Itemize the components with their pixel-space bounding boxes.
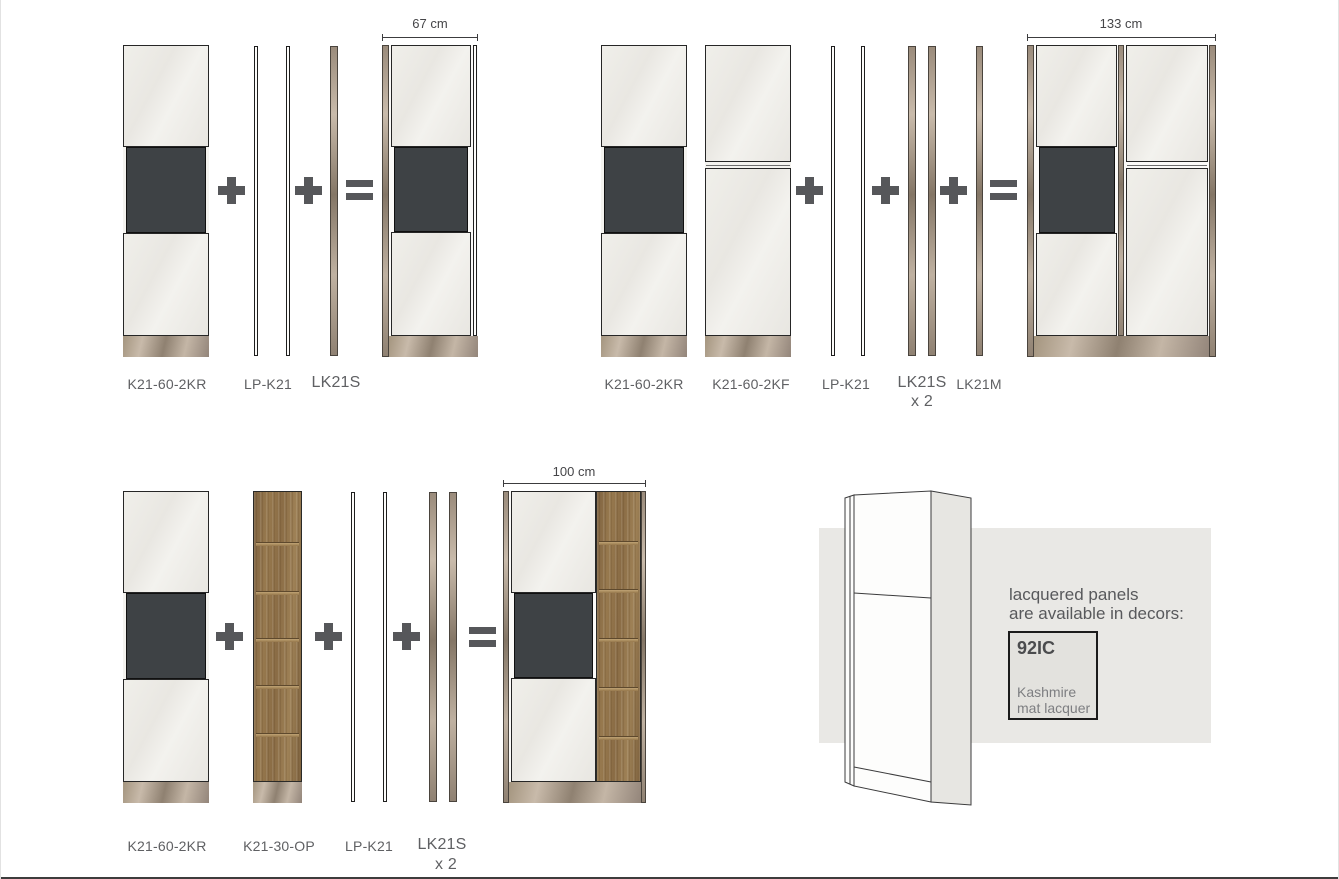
- bookcase-shelf: [256, 733, 299, 737]
- part-label: LK21S: [897, 374, 946, 392]
- cabinet-bottom-door: [123, 679, 209, 782]
- open-compartment: [126, 147, 206, 233]
- bookcase-shelf: [599, 638, 638, 642]
- plus-icon: [295, 177, 322, 204]
- cabinet-bottom-door: [391, 232, 471, 336]
- part-label: LP-K21: [244, 376, 292, 392]
- open-compartment: [126, 593, 206, 679]
- plus-icon: [218, 177, 245, 204]
- side-panel-lk21s: [429, 492, 437, 802]
- dimension-line: [503, 483, 646, 484]
- cabinet-k21-60-2kf: [705, 45, 791, 357]
- info-heading-line2: are available in decors:: [1009, 604, 1184, 623]
- part-quantity: x 2: [435, 856, 457, 874]
- plus-icon: [872, 177, 899, 204]
- cabinet-bottom-door: [123, 233, 209, 336]
- cabinet-top-door: [391, 45, 471, 147]
- door-seam: [706, 165, 790, 166]
- plus-icon: [940, 177, 967, 204]
- plus-icon: [796, 177, 823, 204]
- side-panel-lk21s: [928, 46, 936, 356]
- plus-icon: [315, 623, 342, 650]
- cabinet-top-door: [601, 45, 687, 147]
- bookcase-shelf: [599, 589, 638, 593]
- side-panel-right: [641, 491, 646, 803]
- side-panel-left: [382, 45, 389, 357]
- cabinet-k21-60-2kr: [123, 45, 209, 357]
- side-panel-lk21s: [449, 492, 457, 802]
- cabinet-plinth: [705, 336, 791, 357]
- bookcase-shelf: [256, 591, 299, 595]
- bookcase-shelf: [256, 685, 299, 689]
- decor-name: Kashmire mat lacquer: [1017, 684, 1090, 716]
- bookcase-shelf: [599, 541, 638, 545]
- result-cabinet-133: [1027, 45, 1216, 357]
- cabinet-k21-60-2kr: [601, 45, 687, 357]
- info-heading-line1: lacquered panels: [1009, 585, 1184, 604]
- bookcase-body: [253, 491, 302, 782]
- open-compartment: [514, 593, 593, 678]
- result-cabinet-67: [382, 45, 478, 357]
- cabinet-plinth: [1034, 336, 1209, 357]
- part-label: LK21S: [417, 836, 466, 854]
- mid-panel-lk21m: [976, 46, 983, 356]
- bookcase-shelf: [599, 687, 638, 691]
- info-heading: lacquered panels are available in decors…: [1009, 585, 1184, 623]
- cabinet-top-door: [1036, 45, 1117, 147]
- equals-icon: [990, 180, 1017, 200]
- result-cabinet-100: [503, 491, 646, 803]
- cabinet-top-door: [705, 45, 791, 162]
- cabinet-plinth: [123, 336, 209, 357]
- lacquered-panel: [286, 46, 290, 356]
- bookcase-shelf: [256, 542, 299, 546]
- cabinet-bottom-door: [705, 168, 791, 336]
- decor-code: 92IC: [1017, 638, 1089, 659]
- part-quantity: x 2: [911, 393, 933, 411]
- bookcase-k21-30-op: [253, 491, 302, 803]
- dimension-label: 67 cm: [412, 16, 447, 31]
- lacquered-panel-right: [473, 45, 477, 336]
- part-label: LK21M: [956, 376, 1001, 392]
- side-panel-left: [503, 491, 509, 803]
- part-label: LK21S: [311, 374, 360, 392]
- catalog-page: 67 cm K21-60-2KR LP-K21 LK21S: [0, 0, 1339, 879]
- lacquered-panel: [831, 46, 835, 356]
- dimension-label: 133 cm: [1100, 16, 1143, 31]
- side-panel-right: [1209, 45, 1216, 357]
- decor-name-line1: Kashmire: [1017, 684, 1090, 700]
- decor-swatch: 92IC Kashmire mat lacquer: [1008, 631, 1098, 720]
- door-seam: [1127, 165, 1207, 166]
- cabinet-plinth: [509, 782, 641, 803]
- open-compartment: [1039, 147, 1115, 233]
- lacquered-panel: [254, 46, 258, 356]
- wardrobe-3d-drawing: [839, 488, 979, 810]
- side-panel-lk21s: [908, 46, 916, 356]
- part-label: K21-60-2KF: [712, 376, 789, 392]
- cabinet-bottom-door: [601, 233, 687, 336]
- equals-icon: [469, 627, 496, 647]
- cabinet-bottom-door: [1126, 168, 1208, 336]
- dimension-label: 100 cm: [553, 464, 596, 479]
- part-label: LP-K21: [345, 838, 393, 854]
- open-compartment: [604, 147, 684, 233]
- mid-panel: [1118, 45, 1124, 336]
- cabinet-bottom-door: [1036, 233, 1117, 336]
- cabinet-plinth: [253, 782, 302, 803]
- side-panel-lk21s: [330, 46, 338, 356]
- lacquered-panel: [351, 492, 355, 802]
- bookcase-shelf: [599, 736, 638, 740]
- decor-name-line2: mat lacquer: [1017, 700, 1090, 716]
- open-compartment: [394, 147, 468, 232]
- part-label: K21-60-2KR: [604, 376, 683, 392]
- part-label: LP-K21: [822, 376, 870, 392]
- cabinet-plinth: [601, 336, 687, 357]
- cabinet-top-door: [123, 491, 209, 593]
- cabinet-top-door: [1126, 45, 1208, 162]
- equals-icon: [346, 180, 373, 200]
- cabinet-bottom-door: [511, 678, 596, 782]
- side-panel-left: [1027, 45, 1034, 357]
- part-label: K21-60-2KR: [127, 376, 206, 392]
- part-label: K21-60-2KR: [127, 838, 206, 854]
- lacquered-panel: [861, 46, 865, 356]
- dimension-line: [382, 37, 478, 38]
- bookcase-shelf: [256, 638, 299, 642]
- bookcase-body: [596, 491, 641, 782]
- cabinet-plinth: [389, 336, 478, 357]
- plus-icon: [216, 623, 243, 650]
- part-label: K21-30-OP: [243, 838, 315, 854]
- plus-icon: [393, 623, 420, 650]
- cabinet-plinth: [123, 782, 209, 803]
- cabinet-top-door: [511, 491, 596, 593]
- lacquered-panel: [383, 492, 387, 802]
- cabinet-top-door: [123, 45, 209, 147]
- cabinet-k21-60-2kr: [123, 491, 209, 803]
- dimension-line: [1027, 37, 1216, 38]
